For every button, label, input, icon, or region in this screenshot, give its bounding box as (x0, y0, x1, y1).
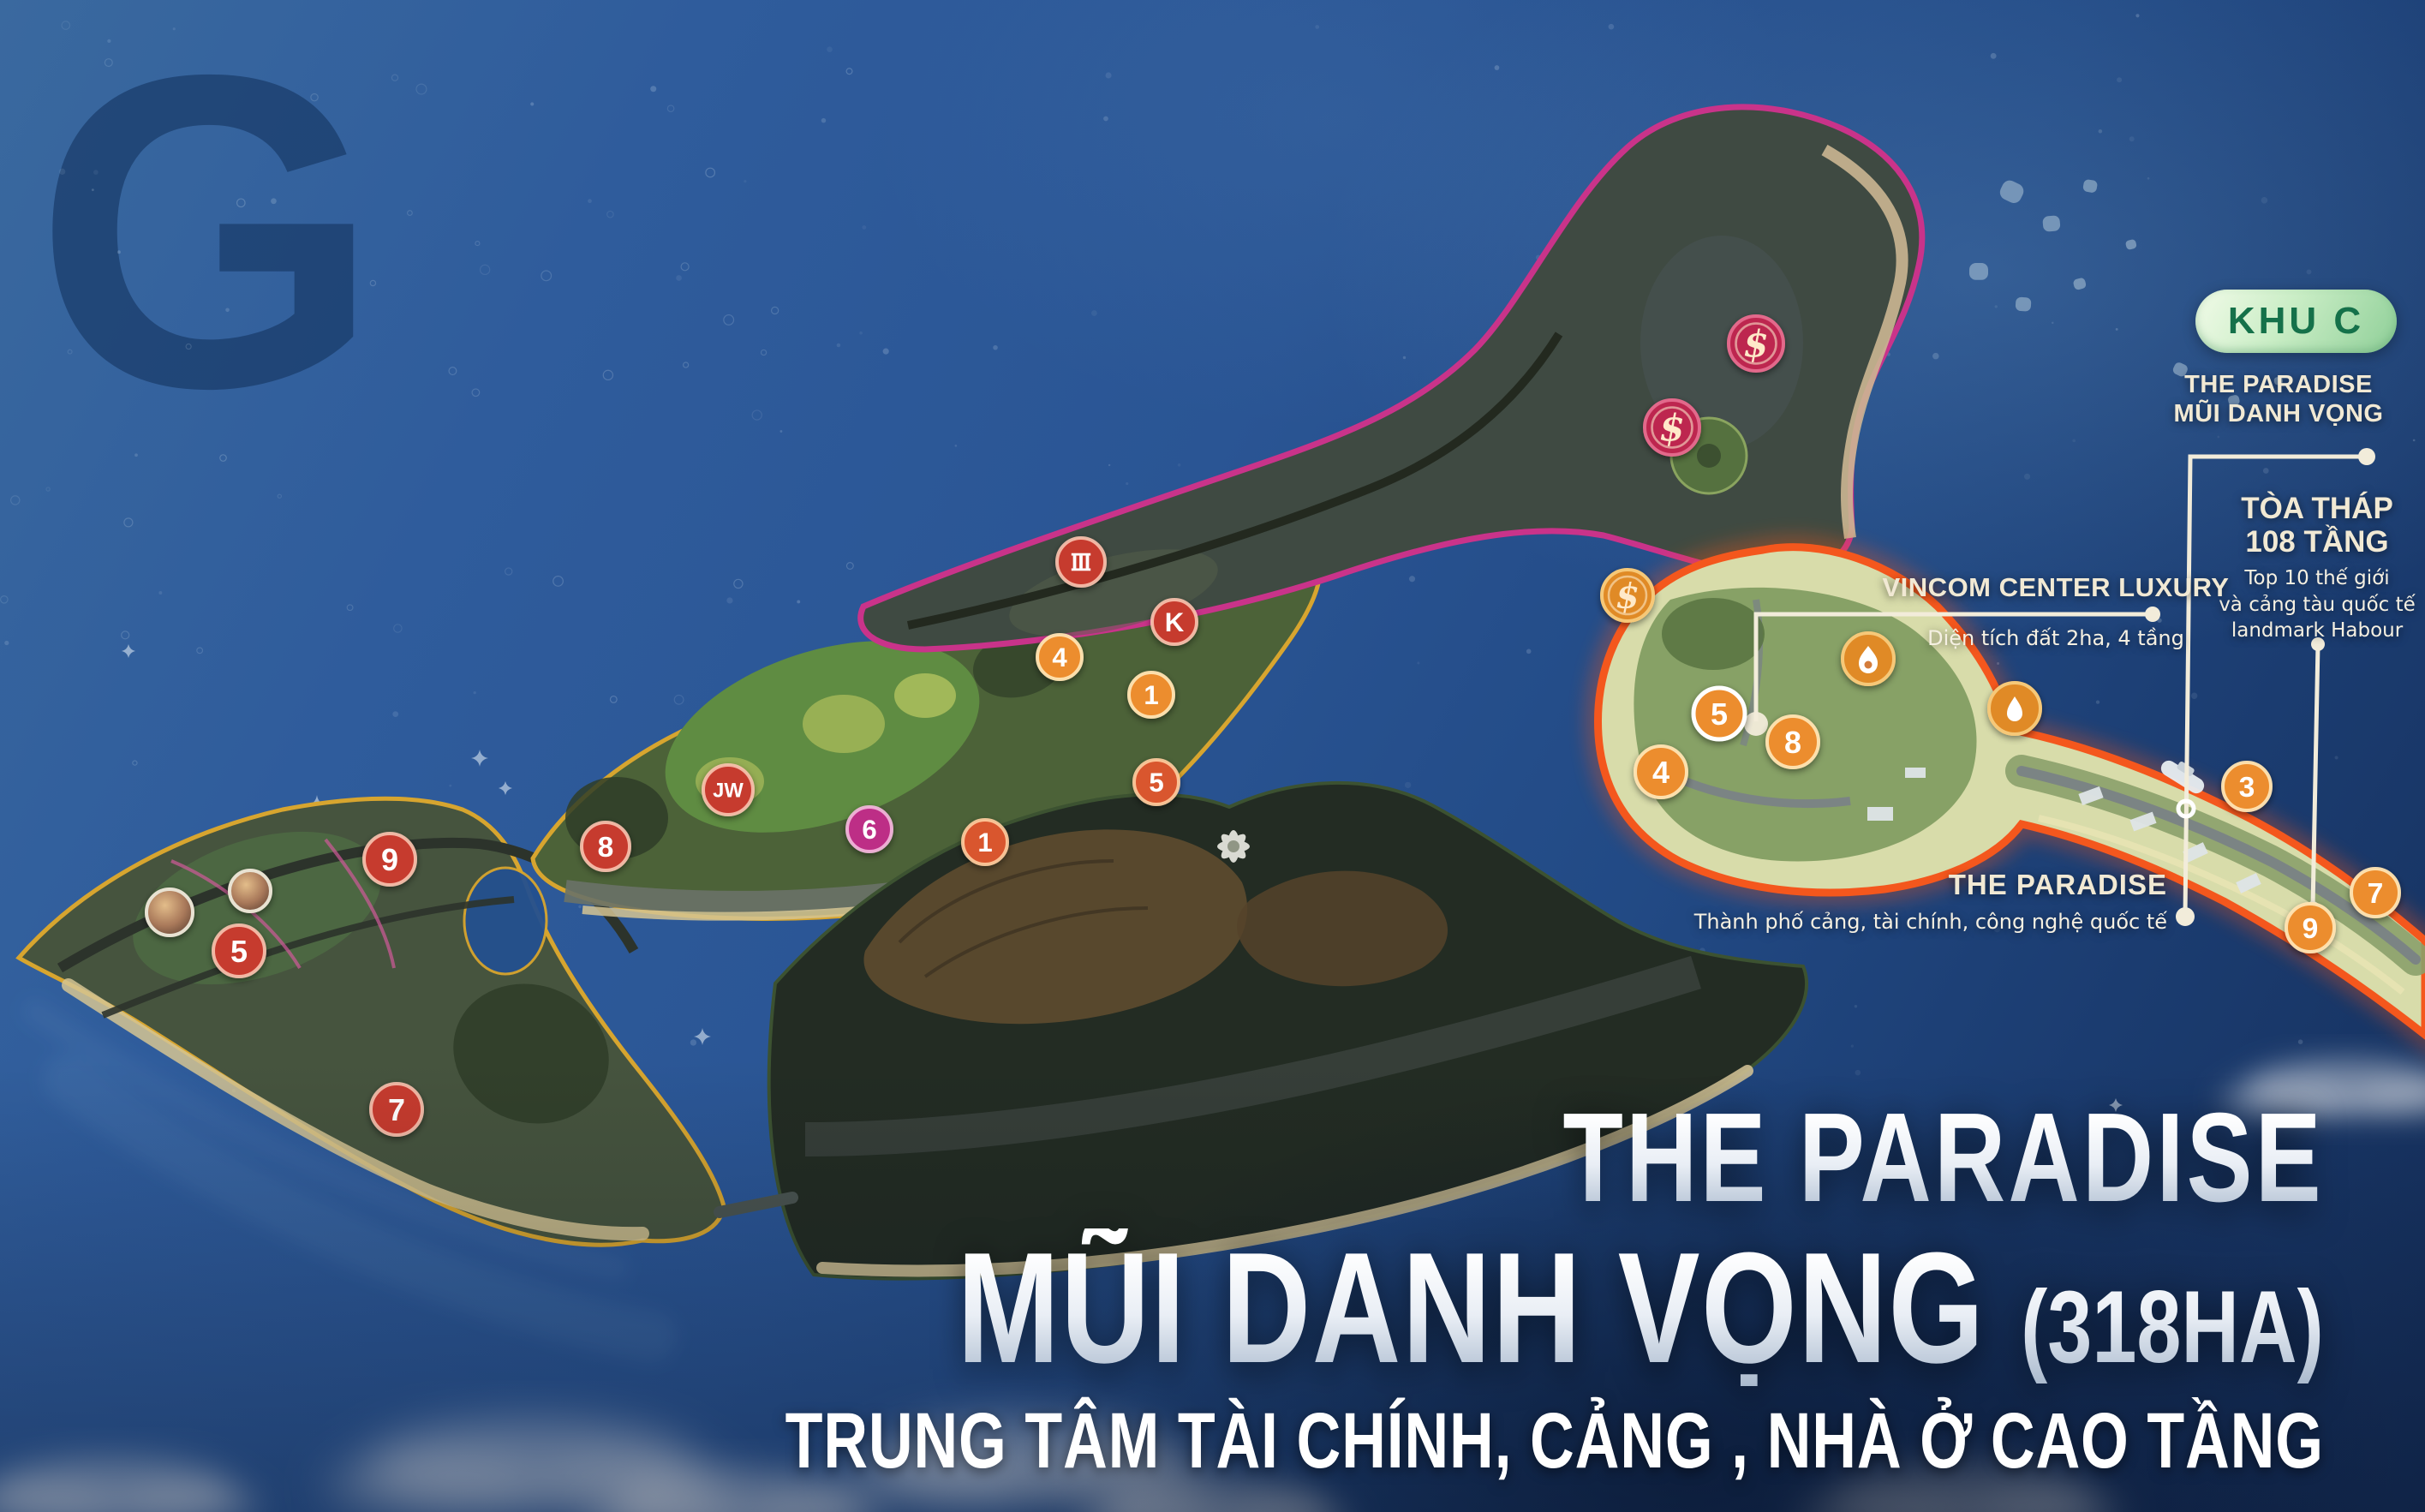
marker-c-5[interactable]: 5 (213, 925, 265, 977)
main-title-subtitle: TRUNG TÂM TÀI CHÍNH, CẢNG , NHÀ Ở CAO TẦ… (785, 1400, 2324, 1483)
marker-a-coin-1[interactable]: $ (1729, 316, 1783, 371)
island-lagoon (464, 868, 547, 974)
svg-text:K: K (1165, 607, 1185, 637)
annotation-vincom-title: VINCOM CENTER LUXURY (1867, 572, 2244, 603)
svg-text:8: 8 (598, 832, 614, 864)
svg-text:$: $ (1743, 323, 1769, 366)
marker-b-gate[interactable] (1057, 538, 1105, 586)
svg-text:4: 4 (1052, 642, 1067, 672)
marker-c-7[interactable]: 7 (371, 1084, 422, 1135)
zone-subtitle-line2: MŨI DANH VỌNG (2116, 399, 2425, 428)
zone-subtitle: THE PARADISE MŨI DANH VỌNG (2116, 370, 2425, 428)
svg-text:8: 8 (1784, 725, 1801, 760)
marker-a-coin-2[interactable]: $ (1645, 400, 1699, 455)
marker-b-1a[interactable]: 1 (963, 820, 1007, 864)
svg-text:5: 5 (1149, 768, 1163, 798)
marker-kc-5[interactable]: 5 (1693, 688, 1745, 739)
marker-b-6[interactable]: 6 (847, 807, 892, 852)
marker-kc-coin[interactable]: $ (1602, 570, 1653, 621)
marker-c-photo-1[interactable] (146, 889, 193, 935)
svg-text:5: 5 (230, 934, 248, 969)
main-title-block: THE PARADISE MŨI DANH VỌNG (318HA) TRUNG… (785, 1095, 2324, 1483)
marker-kc-drop[interactable] (1989, 683, 2040, 734)
marker-b-8[interactable]: 8 (582, 822, 630, 870)
marker-b-jw[interactable]: JW (703, 765, 753, 815)
svg-text:$: $ (1616, 576, 1640, 616)
svg-text:$: $ (1659, 407, 1685, 450)
marker-kc-7[interactable]: 7 (2351, 869, 2399, 917)
marker-kc-8[interactable]: 8 (1767, 716, 1819, 768)
main-title-name: MŨI DANH VỌNG (958, 1219, 1986, 1395)
marker-b-5[interactable]: 5 (1134, 760, 1179, 804)
marker-b-4[interactable]: 4 (1037, 635, 1082, 679)
zone-subtitle-line1: THE PARADISE (2116, 370, 2425, 399)
annotation-vincom-desc: Diện tích đất 2ha, 4 tầng (1867, 626, 2244, 650)
annotation-tower: TÒA THÁP 108 TẦNG Top 10 thế giới và cản… (2189, 492, 2425, 643)
main-title-area: (318HA) (2021, 1270, 2324, 1384)
masterplan-poster: G (0, 0, 2425, 1512)
svg-text:9: 9 (2303, 913, 2319, 945)
marker-b-1b[interactable]: 1 (1129, 672, 1174, 717)
marker-b-k[interactable]: K (1152, 600, 1197, 644)
main-title-line1: THE PARADISE (785, 1095, 2324, 1222)
svg-text:1: 1 (1144, 680, 1158, 710)
zone-badge-khu-c[interactable]: KHU C (2195, 290, 2397, 353)
marker-c-9[interactable]: 9 (364, 834, 415, 885)
marker-c-photo-2[interactable] (230, 870, 271, 911)
svg-text:9: 9 (381, 842, 398, 877)
svg-text:4: 4 (1652, 755, 1669, 790)
svg-text:3: 3 (2239, 772, 2255, 804)
flower-landmark (1217, 830, 1250, 863)
bridge (720, 1198, 792, 1212)
annotation-paradise: THE PARADISE Thành phố cảng, tài chính, … (1694, 869, 2167, 934)
watermark-letter: G (34, 0, 380, 481)
marker-kc-9[interactable]: 9 (2286, 904, 2334, 952)
svg-text:7: 7 (2368, 878, 2384, 910)
svg-text:JW: JW (713, 780, 744, 803)
svg-text:1: 1 (977, 828, 992, 858)
main-title-line2: MŨI DANH VỌNG (318HA) (785, 1228, 2324, 1386)
tower-title-line1: TÒA THÁP (2189, 492, 2425, 525)
paradise-desc: Thành phố cảng, tài chính, công nghệ quố… (1694, 910, 2167, 934)
marker-kc-3[interactable]: 3 (2223, 762, 2271, 810)
marker-kc-4[interactable]: 4 (1635, 746, 1687, 798)
svg-text:6: 6 (862, 815, 876, 845)
paradise-title: THE PARADISE (1694, 869, 2167, 901)
tower-title-line2: 108 TẦNG (2189, 525, 2425, 559)
svg-text:5: 5 (1711, 696, 1728, 732)
svg-text:7: 7 (388, 1092, 405, 1127)
